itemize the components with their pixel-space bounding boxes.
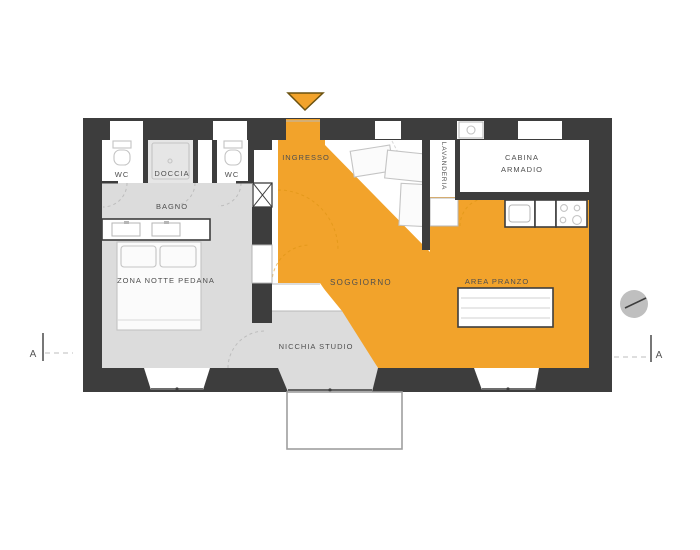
vanity-double-sink <box>102 219 210 240</box>
window-right <box>474 368 539 391</box>
shaft-x-box <box>253 183 272 207</box>
corridor-niche <box>252 245 272 283</box>
interior-wall <box>252 207 272 245</box>
interior-wall <box>252 283 272 323</box>
label-zona-notte: ZONA NOTTE PEDANA <box>117 276 215 285</box>
interior-wall <box>455 140 460 192</box>
washing-machine-icon <box>459 122 483 138</box>
bedroom-door-opening <box>252 323 272 368</box>
bed-outline <box>117 242 201 330</box>
window-splay <box>474 368 539 390</box>
section-letter: A <box>656 350 663 361</box>
washer-body <box>459 122 483 138</box>
wall-niche <box>518 121 562 139</box>
knob-marker <box>620 290 648 318</box>
kitchen-cabinet <box>535 200 556 227</box>
interior-wall <box>193 140 198 183</box>
window-splay <box>144 368 210 390</box>
label-wc-left: WC <box>115 170 130 179</box>
kitchen-counter <box>505 200 587 227</box>
interior-wall <box>455 192 589 200</box>
kitchen-sink-icon <box>509 205 530 222</box>
window-bedroom <box>144 368 210 391</box>
balcony-door-opening <box>278 368 378 392</box>
wall-niche <box>110 121 143 140</box>
appliance-box <box>430 198 458 226</box>
label-doccia: DOCCIA <box>154 169 189 178</box>
faucet-icon <box>124 221 129 224</box>
door-splay <box>278 368 378 392</box>
interior-wall <box>143 140 148 183</box>
faucet-icon <box>164 221 169 224</box>
bed <box>117 242 201 330</box>
label-ingresso: INGRESSO <box>282 153 330 162</box>
outer-wall-left <box>83 118 102 392</box>
outer-wall-right <box>589 118 612 392</box>
window-center-dot <box>506 387 509 390</box>
balcony <box>287 392 402 449</box>
interior-wall <box>422 140 430 250</box>
wall-niche <box>213 121 247 140</box>
interior-wall <box>252 140 272 150</box>
label-cabina: CABINA <box>505 153 539 162</box>
window-center-dot <box>175 387 178 390</box>
interior-wall <box>236 181 252 184</box>
dining-table <box>458 288 553 327</box>
label-nicchia-studio: NICCHIA STUDIO <box>279 342 354 351</box>
sofa-cushion <box>385 150 426 182</box>
floor-plan-page: A A WC DOCCIA WC BAGNO ZONA NOTTE PEDANA… <box>0 0 700 550</box>
sink-basin-icon <box>112 223 140 236</box>
wall-niche <box>375 121 401 139</box>
stove-icon <box>556 200 587 227</box>
section-letter: A <box>30 349 37 360</box>
label-wc-right: WC <box>225 170 240 179</box>
sink-basin-icon <box>152 223 180 236</box>
label-bagno: BAGNO <box>156 202 188 211</box>
label-soggiorno: SOGGIORNO <box>330 278 392 287</box>
floor-plan-drawing: A A WC DOCCIA WC BAGNO ZONA NOTTE PEDANA… <box>0 0 700 550</box>
door-center-dot <box>328 388 331 391</box>
entrance-door-opening <box>286 119 320 140</box>
interior-wall <box>212 140 217 183</box>
label-armadio: ARMADIO <box>501 165 543 174</box>
interior-wall <box>102 181 118 184</box>
label-area-pranzo: AREA PRANZO <box>465 277 529 286</box>
label-lavanderia: LAVANDERIA <box>440 142 447 190</box>
